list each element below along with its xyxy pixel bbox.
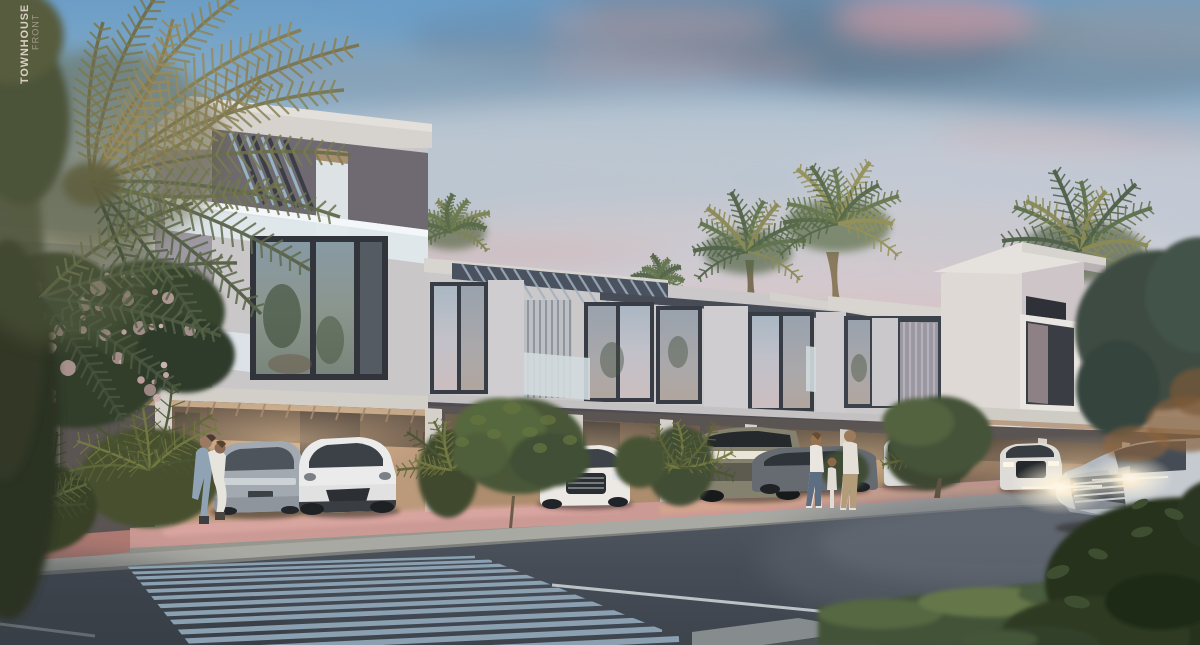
- svg-text:TOWNHOUSE: TOWNHOUSE: [19, 4, 31, 84]
- svg-text:FRONT: FRONT: [31, 14, 41, 51]
